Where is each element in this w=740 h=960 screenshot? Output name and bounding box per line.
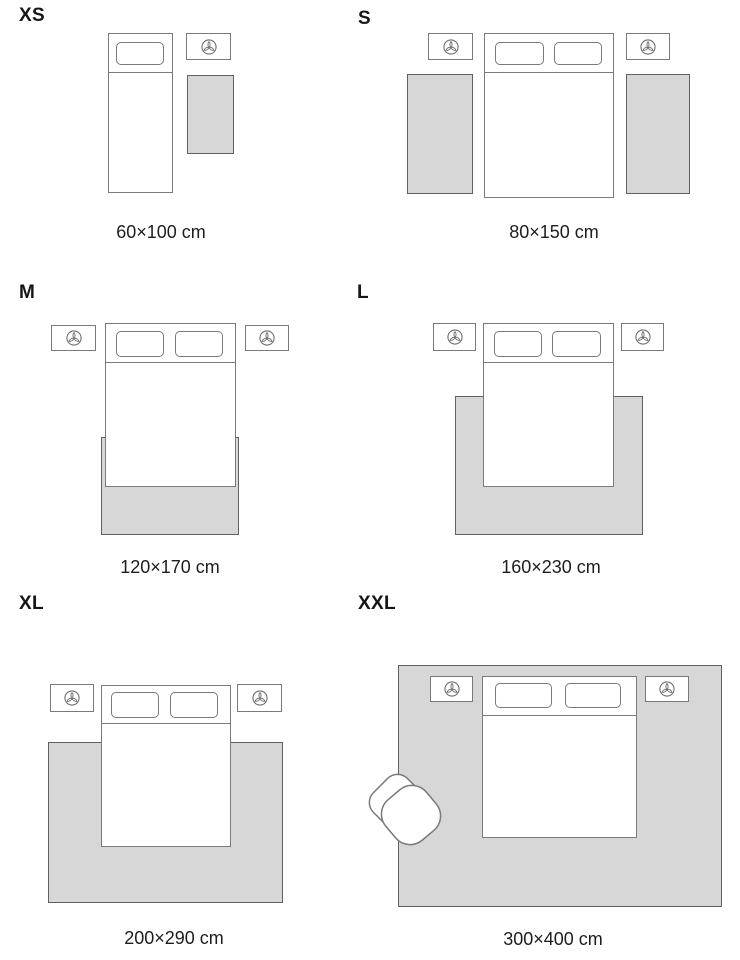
armchair-icon bbox=[360, 763, 450, 851]
pillow bbox=[116, 331, 164, 357]
bed-double bbox=[483, 323, 614, 487]
bed-double bbox=[105, 323, 236, 487]
pillow bbox=[495, 683, 552, 708]
plant-icon bbox=[637, 36, 659, 58]
nightstand bbox=[51, 325, 96, 351]
plant-icon bbox=[444, 326, 466, 348]
rug-s-right bbox=[626, 74, 690, 194]
plant-icon bbox=[656, 678, 678, 700]
nightstand bbox=[433, 323, 476, 351]
plant-icon bbox=[441, 678, 463, 700]
plant-icon bbox=[198, 36, 220, 58]
nightstand bbox=[626, 33, 670, 60]
nightstand bbox=[237, 684, 282, 712]
pillow bbox=[552, 331, 601, 357]
rug-xs bbox=[187, 75, 234, 154]
bed-double bbox=[101, 685, 231, 847]
bed-headboard bbox=[102, 686, 230, 724]
nightstand bbox=[50, 684, 94, 712]
size-caption-xxl: 300×400 cm bbox=[453, 928, 653, 950]
bed-headboard bbox=[484, 324, 613, 363]
pillow bbox=[175, 331, 223, 357]
pillow bbox=[565, 683, 621, 708]
bed-double bbox=[484, 33, 614, 198]
rug-s-left bbox=[407, 74, 473, 194]
bed-headboard bbox=[106, 324, 235, 363]
pillow bbox=[494, 331, 542, 357]
pillow bbox=[170, 692, 218, 718]
plant-icon bbox=[249, 687, 271, 709]
plant-icon bbox=[256, 327, 278, 349]
nightstand bbox=[245, 325, 289, 351]
nightstand bbox=[645, 676, 689, 702]
nightstand bbox=[428, 33, 473, 60]
pillow bbox=[111, 692, 159, 718]
pillow bbox=[495, 42, 544, 65]
bed-single bbox=[108, 33, 173, 193]
nightstand bbox=[621, 323, 664, 351]
plant-icon bbox=[440, 36, 462, 58]
bed-headboard bbox=[483, 677, 636, 716]
bed-double bbox=[482, 676, 637, 838]
bed-headboard bbox=[485, 34, 613, 73]
rug-size-guide: XS 60×100 cm S 80×150 cm bbox=[0, 0, 740, 960]
bed-headboard bbox=[109, 34, 172, 73]
plant-icon bbox=[63, 327, 85, 349]
plant-icon bbox=[61, 687, 83, 709]
plant-icon bbox=[632, 326, 654, 348]
pillow bbox=[116, 42, 164, 65]
nightstand bbox=[430, 676, 473, 702]
size-label-xxl: XXL bbox=[358, 594, 396, 613]
nightstand bbox=[186, 33, 231, 60]
pillow bbox=[554, 42, 602, 65]
